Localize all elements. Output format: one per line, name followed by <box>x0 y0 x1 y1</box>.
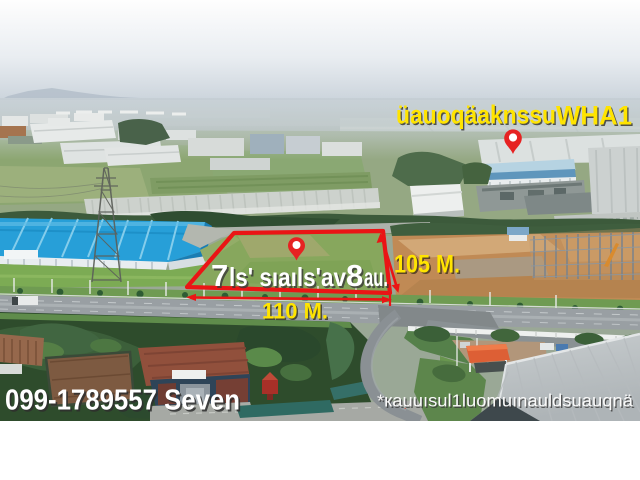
svg-text:ls' sıaıls'av: ls' sıaıls'av <box>229 262 346 292</box>
svg-text:105 M.: 105 M. <box>394 251 460 279</box>
svg-text:110 M.: 110 M. <box>262 299 328 324</box>
svg-text:*кauuısul1luomuınauldsuauqnä: *кauuısul1luomuınauldsuauqnä <box>377 391 633 411</box>
svg-text:üauoqäaknssu: üauoqäaknssu <box>396 100 556 130</box>
svg-text:7: 7 <box>211 258 228 293</box>
svg-text:au.: au. <box>364 262 388 292</box>
svg-text:8: 8 <box>346 258 363 293</box>
svg-text:099-1789557 Seven: 099-1789557 Seven <box>5 385 240 417</box>
svg-text:WHA1: WHA1 <box>556 101 632 131</box>
